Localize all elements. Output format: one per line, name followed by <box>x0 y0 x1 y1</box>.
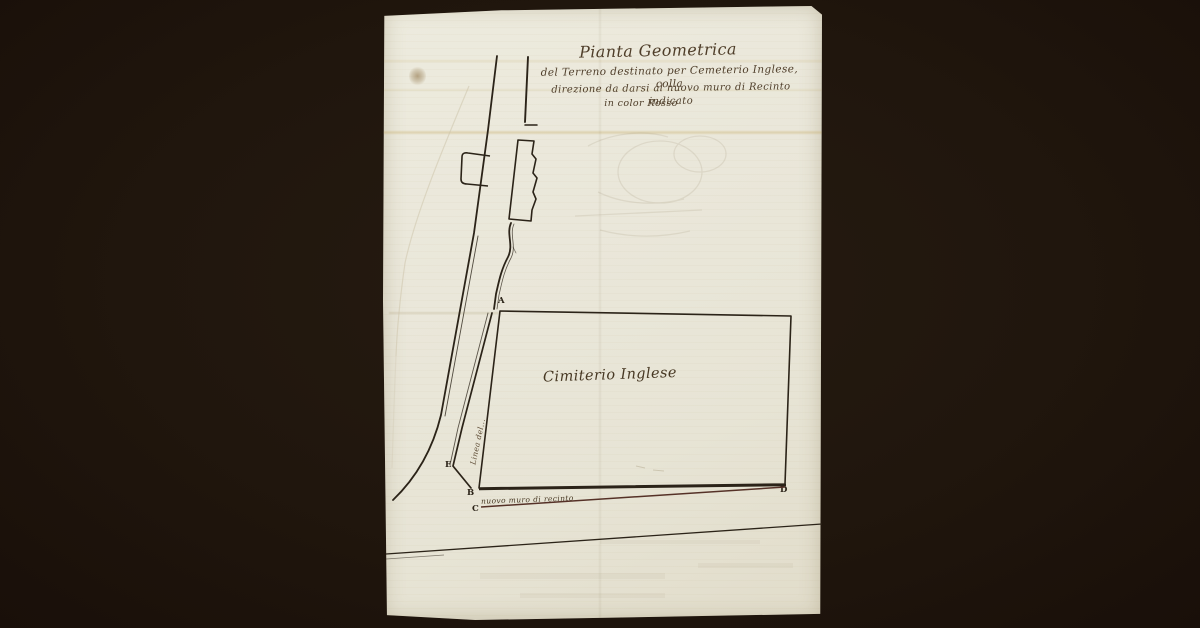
cemetery-area-label: Cimiterio Inglese <box>543 363 694 386</box>
plan-title-line4: in color Rosso <box>561 98 721 110</box>
fold-crease-horizontal <box>383 131 822 134</box>
corner-label-b: B <box>467 488 474 498</box>
fold-crease-horizontal <box>389 312 499 314</box>
photo-background: Pianta Geometrica del Terreno destinato … <box>0 0 1200 628</box>
plan-title-line1: Pianta Geometrica <box>543 39 773 64</box>
corner-label-a: A <box>498 296 505 306</box>
corner-label-d: D <box>780 485 787 495</box>
boundary-annotation: Linea del... <box>468 418 487 466</box>
new-wall-label: nuovo muro di recinto <box>481 493 581 506</box>
corner-label-c: C <box>472 504 479 514</box>
ink-stain <box>409 66 426 86</box>
corner-label-e: E <box>445 460 451 470</box>
paper-sheet: Pianta Geometrica del Terreno destinato … <box>383 6 822 620</box>
